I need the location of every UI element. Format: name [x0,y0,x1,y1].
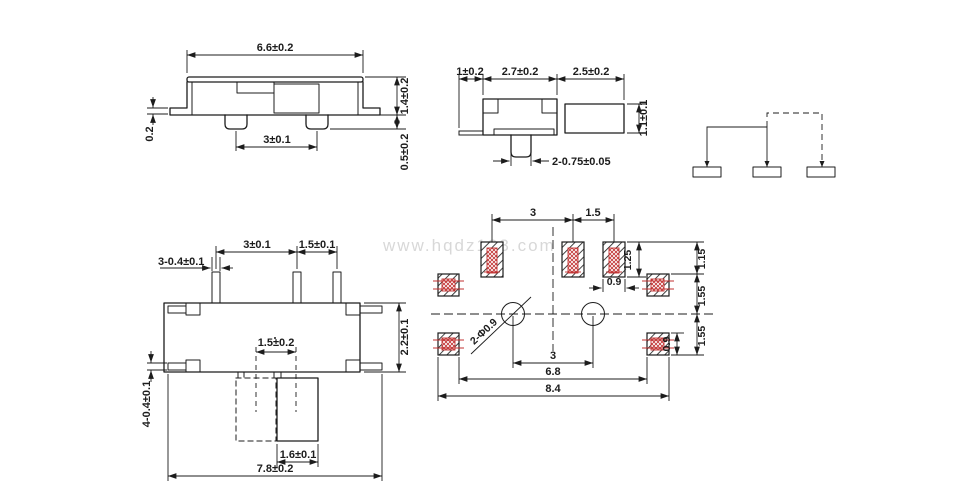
dim-pad-pitch-b: 1.5 [585,207,600,219]
technical-drawing: www.hqdz123.com 6.6±0.2 1.4±0.2 0.5±0.2 [0,0,962,504]
dim-knob-width: 1.6±0.1 [280,449,317,461]
dim-span-outer: 8.4 [545,383,561,395]
dim-side-pad-width: 0.9 [661,337,673,352]
dim-pin-width: 3-0.4±0.1 [158,256,204,268]
dim-standoff-height: 0.5±0.2 [399,134,411,171]
dim-span-inner: 6.8 [545,366,560,378]
dim-knob-height: 1.1±0.1 [638,100,650,137]
dim-pin-pitch-b: 1.5±0.1 [299,239,336,251]
dim-row-top: 1.15 [696,249,708,270]
pad-inner-mark [568,248,578,273]
dim-knob-length: 2.5±0.2 [573,66,610,78]
pad-inner-mark [487,248,497,273]
dim-pin-pitch: 3±0.1 [263,134,290,146]
dim-body-depth: 2.2±0.1 [399,319,411,356]
dim-overall-width: 6.6±0.2 [257,42,294,54]
dim-row-mid: 1.55 [696,286,708,307]
dim-row-bottom: 1.55 [696,326,708,347]
pad-inner-mark [609,248,619,273]
dim-pad-length: 1.25 [622,250,634,271]
dim-hole-pitch: 3 [550,350,556,362]
dim-pad-pitch-a: 3 [530,207,536,219]
dim-tab-width: 4-0.4±0.1 [141,381,153,427]
dim-body-height: 1.4±0.2 [399,78,411,115]
dim-overall-width: 7.8±0.2 [257,463,294,475]
watermark-text: www.hqdz123.com [382,236,556,255]
dim-pin-width: 2-0.75±0.05 [552,156,611,168]
drawing-sheet: www.hqdz123.com 6.6±0.2 1.4±0.2 0.5±0.2 [0,0,962,504]
dim-travel: 1.5±0.2 [258,337,295,349]
dim-body-width: 2.7±0.2 [502,66,539,78]
dim-pin-pitch-a: 3±0.1 [243,239,270,251]
dim-pad-width: 0.9 [607,276,622,288]
dim-leg-thickness: 0.2 [144,126,156,141]
dim-leg-length: 1±0.2 [456,66,483,78]
